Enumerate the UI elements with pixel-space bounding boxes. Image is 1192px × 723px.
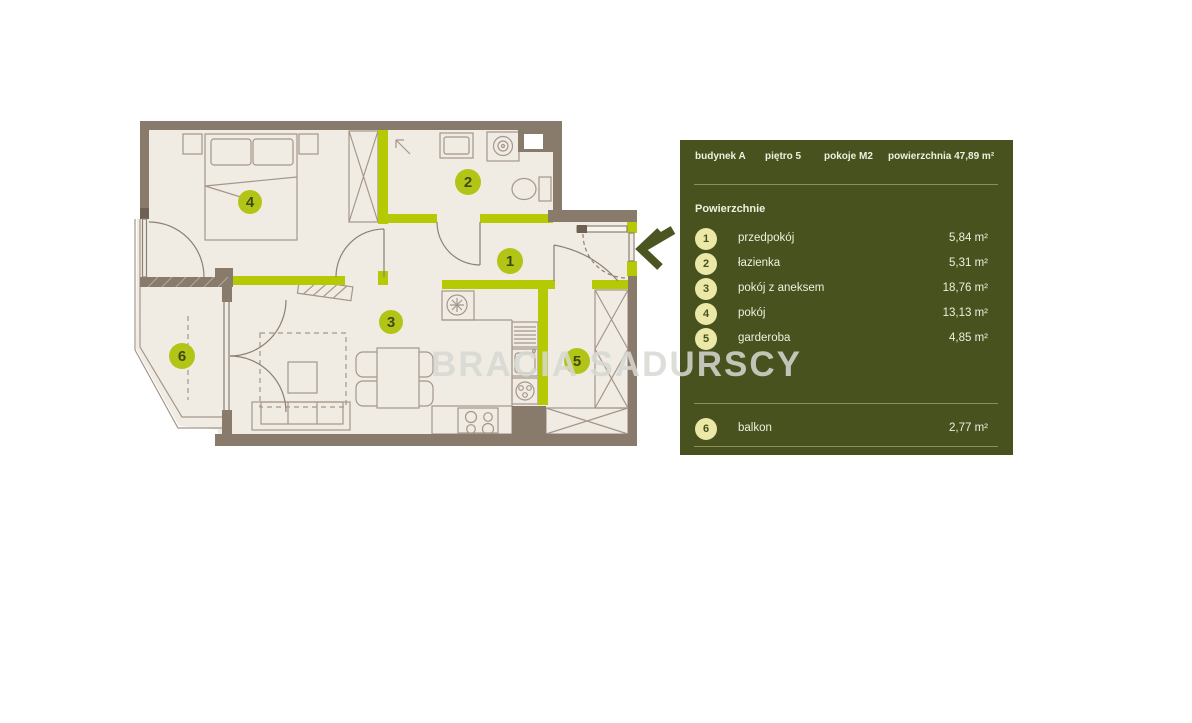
areas-section-title: Powierzchnie bbox=[695, 203, 765, 215]
panel-divider bbox=[694, 446, 998, 447]
row-area-value: 2,77 m² bbox=[949, 422, 988, 434]
area-row-balkon: 6 balkon 2,77 m² bbox=[680, 417, 1013, 441]
room-badge-4: 4 bbox=[238, 190, 262, 214]
row-area-value: 13,13 m² bbox=[943, 307, 988, 319]
dining-table bbox=[377, 348, 419, 408]
building-label: budynek A bbox=[695, 151, 746, 162]
room-badge-2: 2 bbox=[455, 169, 481, 195]
row-area-value: 5,84 m² bbox=[949, 232, 988, 244]
row-label: balkon bbox=[738, 422, 772, 434]
row-label: przedpokój bbox=[738, 232, 794, 244]
svg-text:3: 3 bbox=[387, 314, 395, 331]
entrance-door-hinge bbox=[577, 225, 587, 233]
row-area-value: 5,31 m² bbox=[949, 257, 988, 269]
balcony-floor bbox=[136, 219, 222, 430]
row-area-value: 18,76 m² bbox=[943, 282, 988, 294]
row-number-badge: 6 bbox=[695, 418, 717, 440]
svg-text:6: 6 bbox=[178, 348, 186, 365]
row-number-badge: 4 bbox=[695, 303, 717, 325]
shaft-notch bbox=[524, 134, 543, 149]
entrance-arrow-icon bbox=[641, 230, 673, 267]
panel-divider bbox=[694, 403, 998, 404]
area-row-przedpokoj: 1 przedpokój 5,84 m² bbox=[680, 227, 1013, 251]
svg-text:1: 1 bbox=[506, 253, 514, 270]
svg-text:4: 4 bbox=[246, 194, 255, 211]
rooms-type-label: pokoje M2 bbox=[824, 151, 873, 162]
area-row-pokoj: 4 pokój 13,13 m² bbox=[680, 302, 1013, 326]
svg-text:2: 2 bbox=[464, 174, 472, 191]
row-number-badge: 3 bbox=[695, 278, 717, 300]
room-badge-3: 3 bbox=[379, 310, 403, 334]
room-badge-6: 6 bbox=[169, 343, 195, 369]
row-label: pokój z aneksem bbox=[738, 282, 824, 294]
floorplan-page: 1 2 3 4 5 6 budynek A piętro 5 pokoje M2… bbox=[0, 0, 1192, 723]
total-area-label: powierzchnia 47,89 m² bbox=[888, 151, 994, 162]
row-area-value: 4,85 m² bbox=[949, 332, 988, 344]
area-row-lazienka: 2 łazienka 5,31 m² bbox=[680, 252, 1013, 276]
panel-divider bbox=[694, 184, 998, 185]
floor-label: piętro 5 bbox=[765, 151, 801, 162]
room-badge-1: 1 bbox=[497, 248, 523, 274]
row-number-badge: 1 bbox=[695, 228, 717, 250]
row-number-badge: 2 bbox=[695, 253, 717, 275]
agency-watermark: BRACIA SADURSCY bbox=[431, 345, 802, 385]
row-label: pokój bbox=[738, 307, 766, 319]
unit-info-panel: budynek A piętro 5 pokoje M2 powierzchni… bbox=[680, 140, 1013, 455]
area-row-pokoj-z-aneksem: 3 pokój z aneksem 18,76 m² bbox=[680, 277, 1013, 301]
row-label: garderoba bbox=[738, 332, 790, 344]
row-label: łazienka bbox=[738, 257, 780, 269]
